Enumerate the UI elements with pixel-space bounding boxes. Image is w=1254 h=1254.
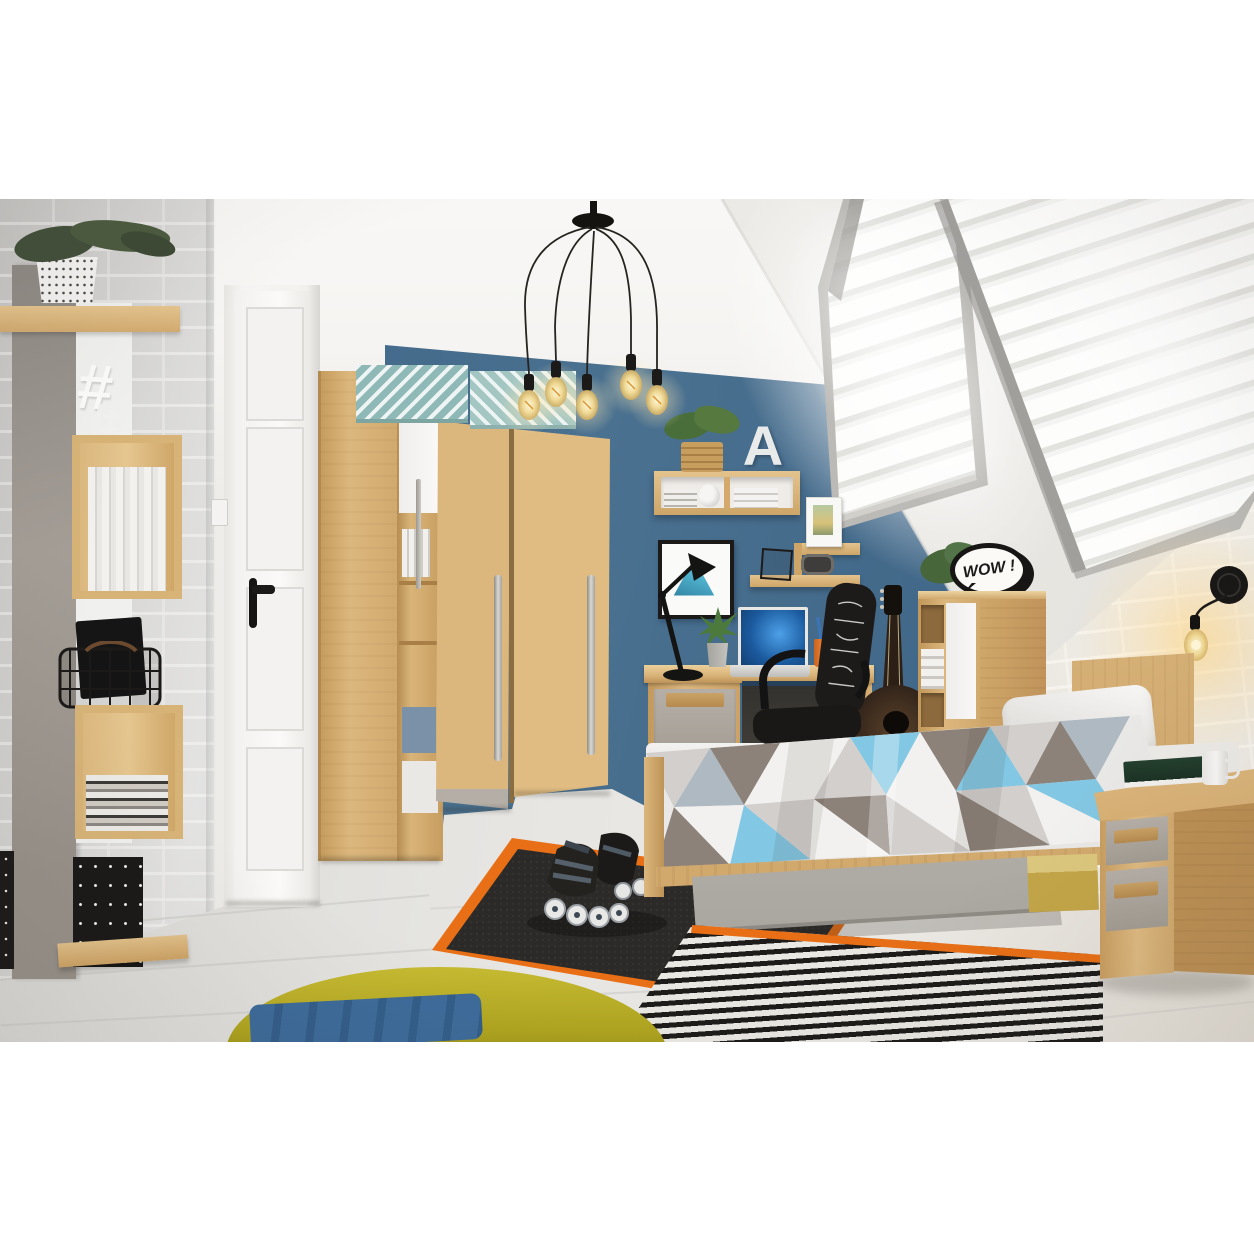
black-storage-bin xyxy=(0,851,14,969)
column-shelf-line xyxy=(399,641,441,645)
door-panel xyxy=(246,427,304,571)
door-panel xyxy=(246,307,304,421)
wow-sign-text: WOW ! xyxy=(962,557,1016,582)
wardrobe-handle xyxy=(494,575,502,761)
photo-frame-picture xyxy=(813,505,833,535)
wall-shelf-divider xyxy=(724,477,730,508)
stacked-books xyxy=(86,775,168,831)
column-box-white xyxy=(402,761,438,813)
wow-sign: WOW ! xyxy=(950,543,1028,597)
column-box-blue xyxy=(402,707,436,753)
door-handle-lever xyxy=(252,585,275,594)
light-switch xyxy=(211,499,228,526)
storage-box-chevron xyxy=(470,371,576,429)
plant-pot-dotted xyxy=(32,257,102,303)
door-panel xyxy=(246,747,304,871)
wardrobe-tall-cabinet xyxy=(318,371,398,861)
desk-plant-pot xyxy=(706,643,729,667)
shelf-basket xyxy=(681,442,723,472)
white-books xyxy=(88,467,166,591)
cabinet-door-white xyxy=(946,603,976,719)
wire-basket xyxy=(56,641,166,713)
photo-canvas: # # A xyxy=(0,0,1254,1254)
column-handle xyxy=(416,479,421,589)
door-floor-shadow xyxy=(226,901,320,906)
cabinet-top-edge xyxy=(918,591,1046,599)
letter-a-decoration: A xyxy=(738,419,788,471)
divider-shelf-grey-panel xyxy=(12,265,76,979)
round-speaker-clock xyxy=(801,554,834,575)
wardrobe-floor-shadow xyxy=(514,791,610,796)
shelf-books xyxy=(734,488,778,508)
cabinet-towels xyxy=(921,649,944,689)
piggy-bank xyxy=(699,484,720,507)
divider-shelf-board xyxy=(0,306,180,332)
wardrobe-floor-shadow xyxy=(320,857,440,863)
nightstand-front xyxy=(1100,808,1174,979)
attic-bedroom-photo: # # A xyxy=(0,199,1254,1042)
storage-box-chevron xyxy=(356,365,468,423)
shelf-books xyxy=(664,489,697,508)
mug-handle xyxy=(1225,759,1240,779)
nightstand-drawer xyxy=(1106,866,1168,931)
wardrobe-floor-shadow xyxy=(443,807,511,812)
cabinet-open-cell xyxy=(921,605,944,643)
gold-box xyxy=(1027,854,1099,912)
wardrobe-handle xyxy=(587,575,595,755)
desk-drawer-handle xyxy=(666,693,724,707)
wardrobe-door-gap xyxy=(509,427,514,803)
